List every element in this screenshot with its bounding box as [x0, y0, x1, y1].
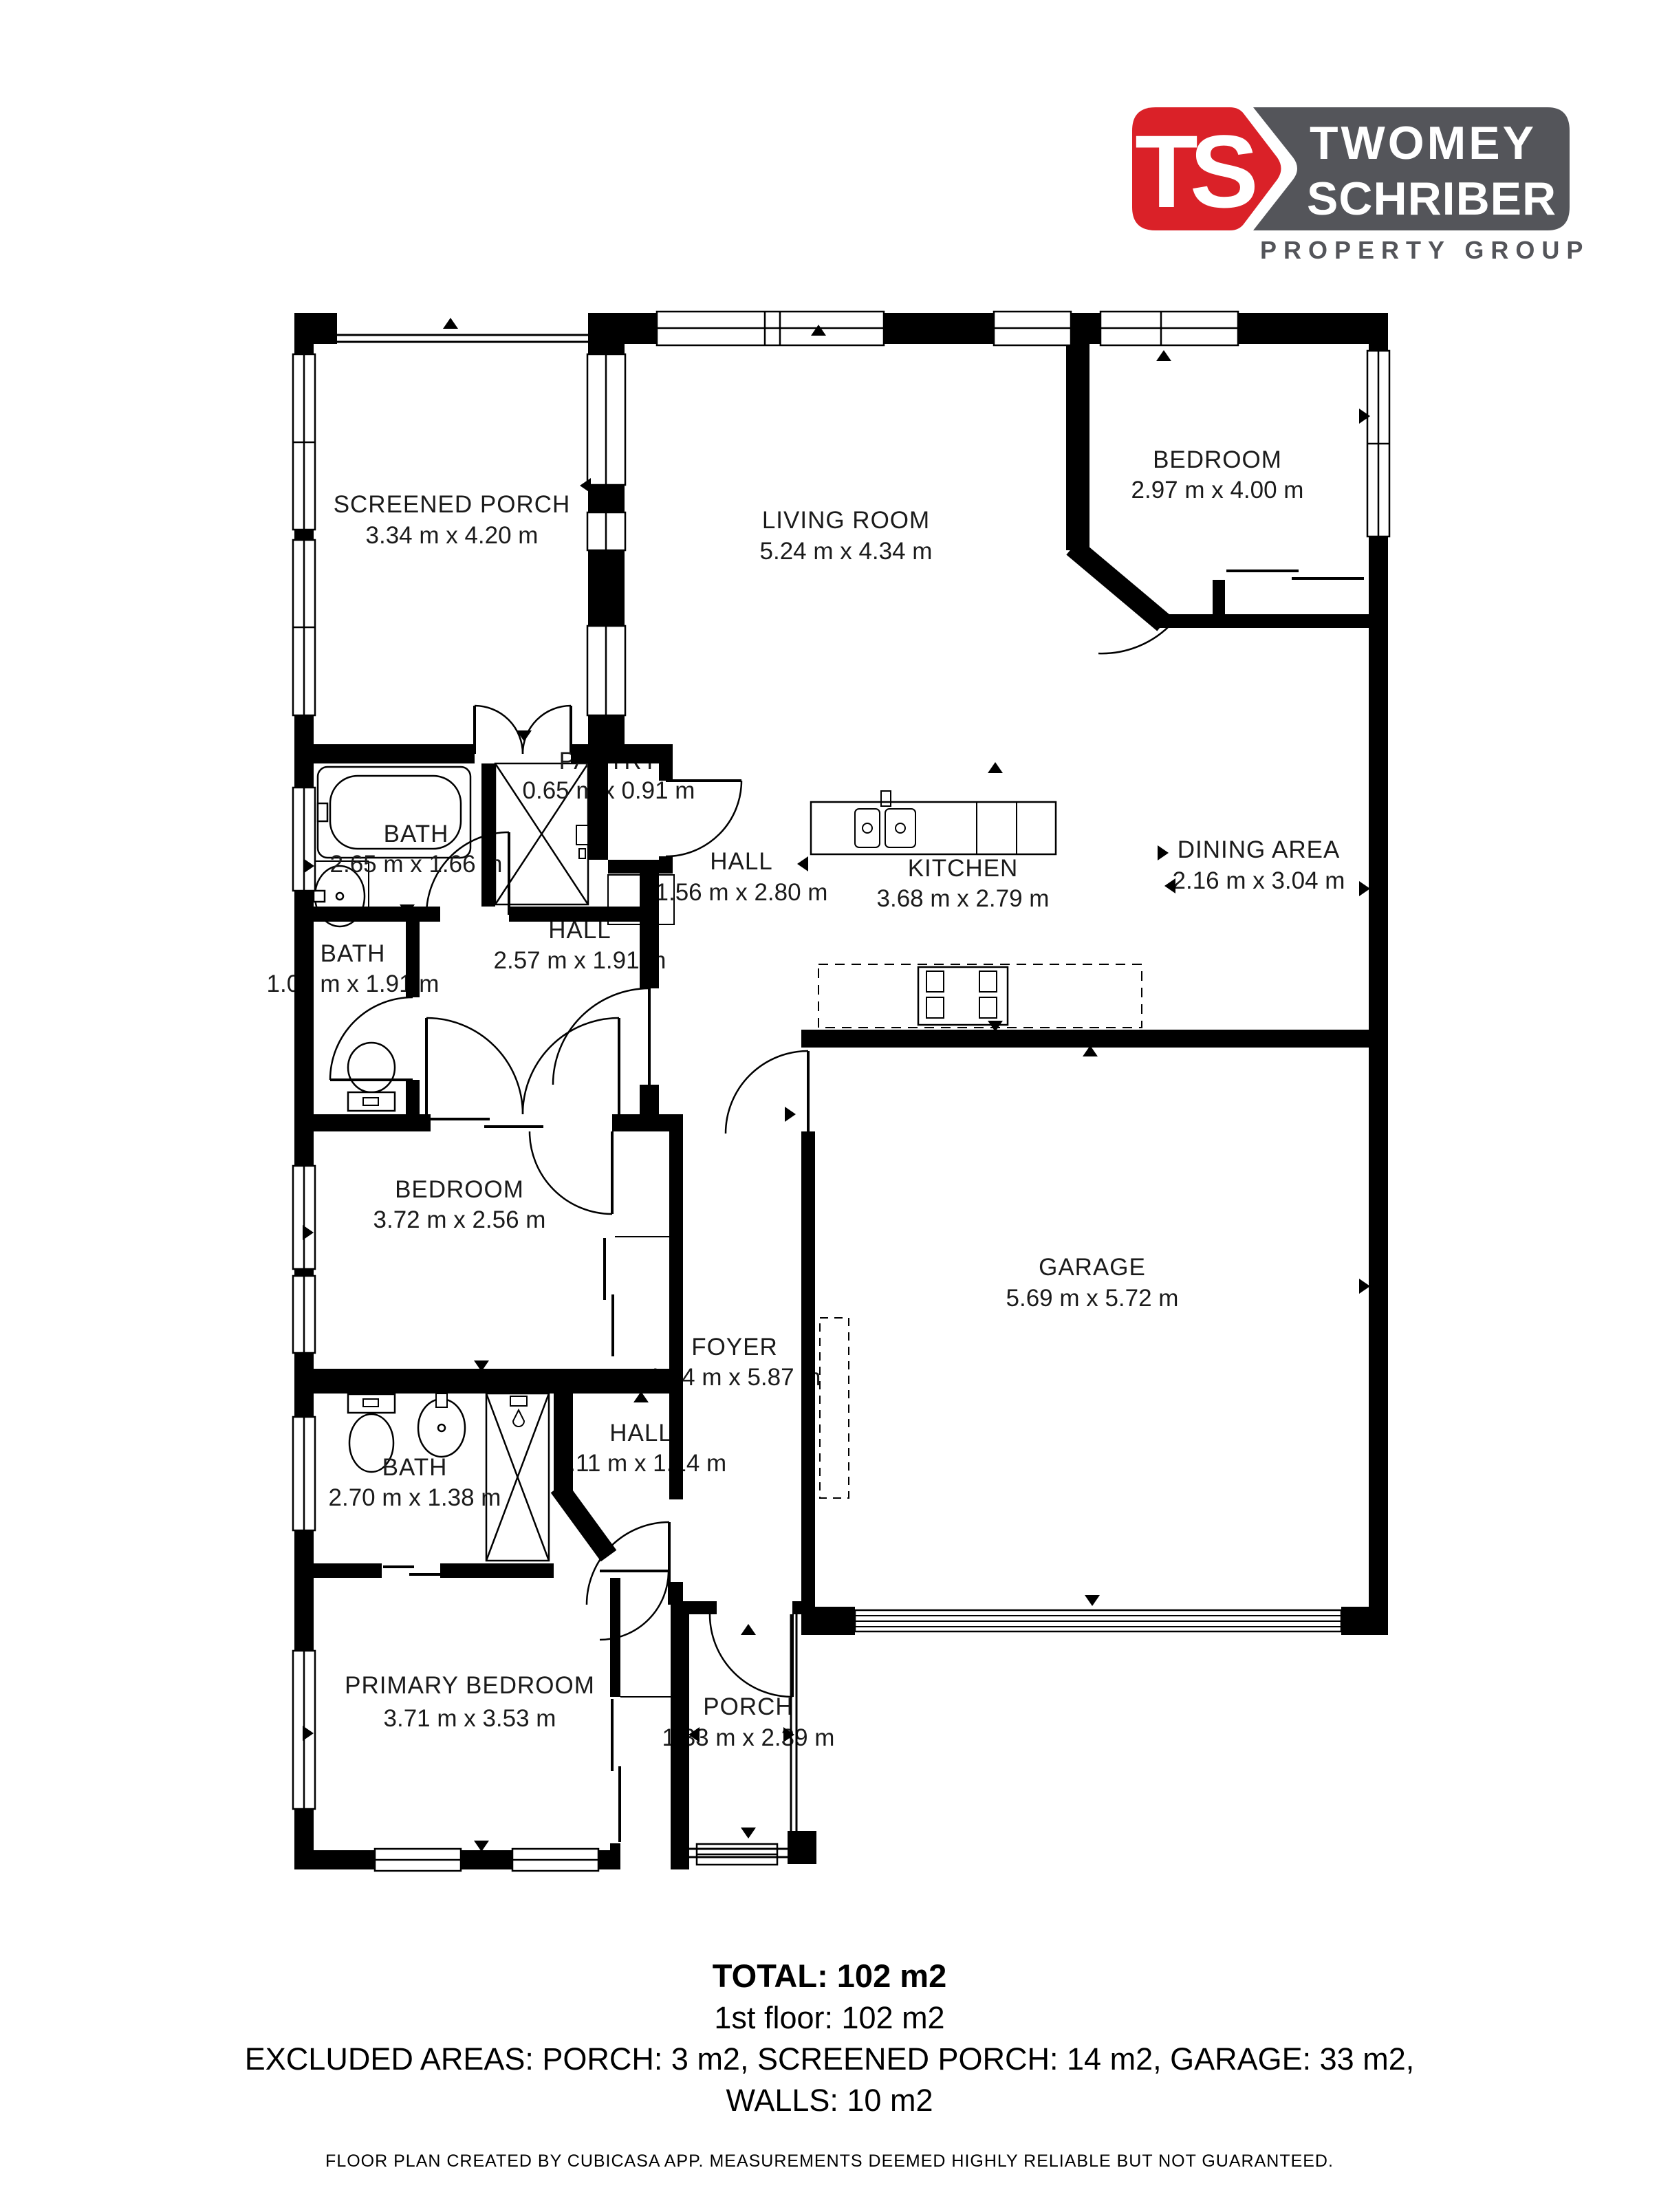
floor-plan-drawing: TS TWOMEY SCHRIBER PROPERTY GROUP: [0, 0, 1659, 2212]
window: [293, 354, 315, 530]
floor-plan-page: TS TWOMEY SCHRIBER PROPERTY GROUP: [0, 0, 1659, 2212]
room-dims-bedroom-mid: 3.72 m x 2.56 m: [373, 1206, 546, 1233]
toilet: [348, 1043, 395, 1092]
window: [293, 1276, 315, 1353]
room-label-kitchen: KITCHEN: [908, 855, 1019, 882]
window: [697, 1844, 777, 1865]
logo-name-line2: SCHRIBER: [1307, 173, 1557, 225]
room-dims-garage: 5.69 m x 5.72 m: [1006, 1285, 1179, 1312]
room-label-living-room: LIVING ROOM: [762, 507, 930, 534]
room-dims-kitchen: 3.68 m x 2.79 m: [877, 885, 1050, 912]
window: [375, 1849, 461, 1871]
disclaimer-text: FLOOR PLAN CREATED BY CUBICASA APP. MEAS…: [0, 2151, 1659, 2171]
window: [1100, 312, 1238, 345]
room-label-primary-bedroom: PRIMARY BEDROOM: [345, 1672, 595, 1699]
room-label-bath-ensuite: BATH: [382, 1454, 448, 1481]
window: [587, 626, 625, 715]
window: [293, 540, 315, 715]
brand-logo: TS TWOMEY SCHRIBER PROPERTY GROUP: [1132, 107, 1590, 264]
room-dims-bath-ensuite: 2.70 m x 1.38 m: [329, 1484, 501, 1511]
room-dims-hall-small: 1.11 m x 1.14 m: [556, 1450, 726, 1477]
utility-dashed-box: [820, 1318, 849, 1498]
walls-area-text: WALLS: 10 m2: [0, 2083, 1659, 2118]
window: [994, 312, 1071, 345]
window: [587, 354, 625, 485]
room-label-hall-kitchen: HALL: [710, 848, 773, 875]
room-label-hall-small: HALL: [609, 1420, 673, 1446]
room-label-dining-area: DINING AREA: [1178, 836, 1341, 863]
garage-door: [855, 1610, 1341, 1631]
window: [1367, 351, 1389, 536]
room-label-porch: PORCH: [703, 1693, 793, 1720]
window: [657, 312, 884, 345]
room-dims-pantry: 0.65 m x 0.91 m: [523, 777, 695, 804]
window: [293, 1417, 315, 1530]
kitchen-sink: [855, 809, 880, 847]
total-area-text: TOTAL: 102 m2: [0, 1957, 1659, 1995]
room-dims-hall-kitchen: 1.56 m x 2.80 m: [655, 879, 828, 906]
room-dims-living-room: 5.24 m x 4.34 m: [760, 538, 933, 565]
room-dims-bedroom-top: 2.97 m x 4.00 m: [1131, 477, 1304, 503]
room-label-bath-main: BATH: [384, 821, 449, 847]
room-label-bath-wc: BATH: [321, 940, 386, 967]
room-dims-bath-main: 2.65 m x 1.66 m: [330, 851, 503, 878]
room-label-bedroom-top: BEDROOM: [1153, 446, 1282, 473]
stove: [918, 967, 1008, 1025]
room-label-screened-porch: SCREENED PORCH: [334, 491, 571, 518]
logo-monogram: TS: [1135, 113, 1255, 229]
excluded-areas-text: EXCLUDED AREAS: PORCH: 3 m2, SCREENED PO…: [0, 2041, 1659, 2077]
kitchen-island: [811, 802, 1056, 854]
room-label-bedroom-mid: BEDROOM: [395, 1176, 524, 1203]
logo-tagline: PROPERTY GROUP: [1260, 236, 1590, 264]
room-label-foyer: FOYER: [691, 1334, 778, 1360]
doors: [330, 559, 1173, 1697]
room-dims-screened-porch: 3.34 m x 4.20 m: [366, 522, 539, 549]
room-dims-primary-bedroom: 3.71 m x 3.53 m: [384, 1705, 556, 1732]
room-label-garage: GARAGE: [1039, 1254, 1146, 1281]
floor-area-text: 1st floor: 102 m2: [0, 2000, 1659, 2036]
window: [293, 788, 315, 891]
logo-name-line1: TWOMEY: [1310, 117, 1537, 169]
window: [587, 512, 625, 550]
window: [293, 1166, 315, 1269]
window: [512, 1849, 598, 1871]
room-dims-dining-area: 2.16 m x 3.04 m: [1173, 867, 1345, 894]
